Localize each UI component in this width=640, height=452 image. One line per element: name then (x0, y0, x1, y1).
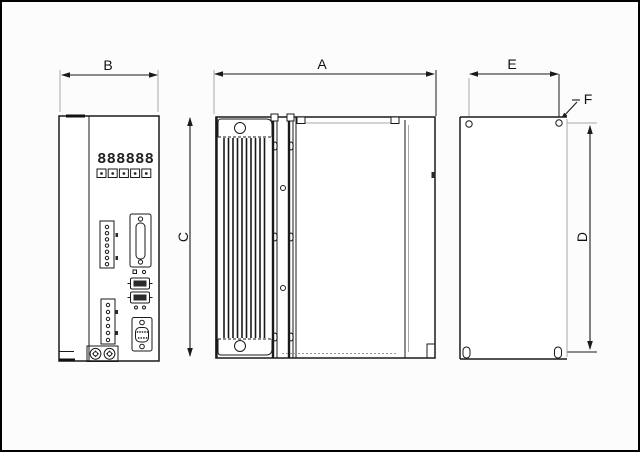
dim-e-label: E (507, 56, 516, 72)
rail-hook (287, 114, 294, 121)
rear-view (460, 117, 567, 359)
dimension-drawing: B A E C D F (0, 0, 640, 452)
dim-d-label: D (574, 232, 590, 242)
dim-b-label: B (103, 57, 112, 73)
seven-segment-display: 888888 (97, 152, 154, 167)
front-view: 888888 (59, 116, 159, 362)
rail-hook (271, 114, 278, 121)
drawing-canvas: B A E C D F (0, 0, 640, 452)
dim-a-label: A (317, 56, 327, 72)
side-outline (216, 117, 435, 358)
cover-clip (297, 117, 305, 124)
edge-tab (432, 172, 436, 178)
side-view (216, 114, 436, 358)
cover-clip (391, 117, 399, 124)
display-digits: 888888 (97, 152, 154, 167)
callout-f-label: F (584, 91, 593, 107)
dim-c-label: C (175, 232, 191, 242)
